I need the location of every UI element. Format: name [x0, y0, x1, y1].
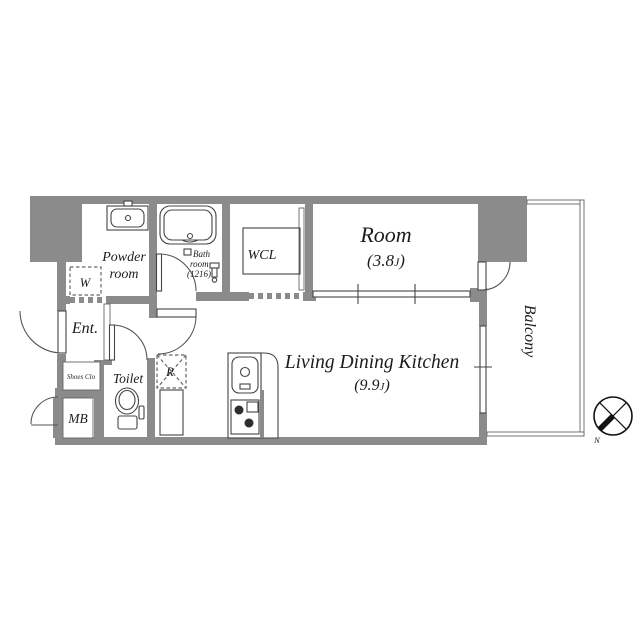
bath-room-label-line2: room	[190, 259, 209, 269]
ldk-area-label: (9.9J)	[354, 377, 390, 394]
wall	[106, 296, 149, 304]
powder-room-label-line2: room	[109, 267, 138, 282]
entrance-door	[20, 311, 66, 353]
wall	[53, 398, 63, 438]
washing-machine-label: W	[80, 276, 92, 290]
washbasin-icon	[107, 201, 148, 230]
room-area-label: (3.8J)	[367, 251, 405, 270]
wall	[147, 358, 155, 438]
bath-counter-icon	[184, 249, 191, 255]
wcl-label: WCL	[248, 248, 277, 263]
kitchen-icon	[228, 353, 278, 438]
powder-room-label-line1: Powder	[101, 250, 146, 265]
toilet-icon	[116, 388, 145, 429]
ldk-balcony-window	[474, 326, 492, 413]
toilet-label: Toilet	[113, 371, 145, 386]
balcony-label: Balcony	[521, 305, 538, 358]
refrigerator-label: R	[165, 365, 174, 379]
wall	[305, 200, 313, 296]
room-label: Room	[359, 222, 411, 247]
entrance-label: Ent.	[71, 320, 98, 337]
compass-icon: N	[593, 397, 632, 445]
room-balcony-door	[478, 262, 510, 290]
bath-faucet-icon	[210, 263, 219, 282]
bath-room-label-line1: Bath	[193, 249, 210, 259]
meter-box-label: MB	[67, 411, 88, 426]
bathtub-icon	[160, 206, 216, 244]
wall	[479, 296, 487, 326]
ldk-hall-door	[157, 309, 196, 354]
wall	[149, 200, 157, 318]
bath-room-label-line3: (1216)	[187, 269, 211, 279]
floorplan: Powder room Bath room (1216) WCL Room (3…	[0, 0, 640, 640]
room-ldk-sliding-partition	[313, 284, 470, 304]
wall	[30, 196, 480, 204]
wall	[196, 292, 249, 301]
toilet-door	[110, 325, 148, 360]
wall	[30, 196, 82, 262]
wall	[478, 196, 527, 262]
shoes-closet-label: Shoes Clo	[67, 373, 96, 381]
floorplan-drawing: Powder room Bath room (1216) WCL Room (3…	[0, 0, 640, 640]
wall	[63, 296, 70, 304]
ldk-label: Living Dining Kitchen	[284, 352, 459, 373]
counter-cabinet	[160, 390, 183, 435]
wall	[222, 200, 230, 296]
compass-north-label: N	[593, 435, 601, 445]
